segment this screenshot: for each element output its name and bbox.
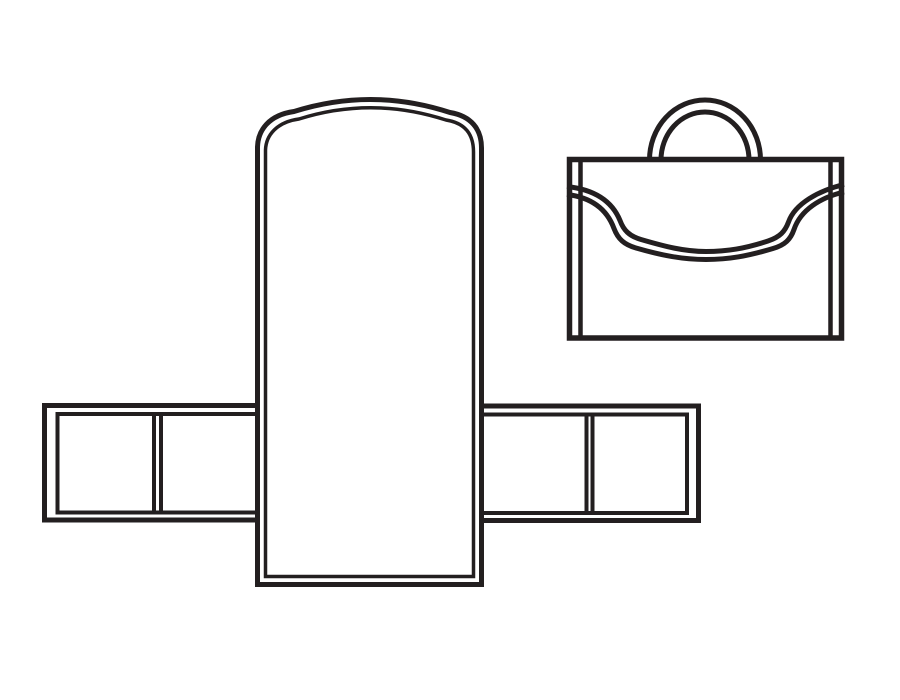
side-strip-left [45,406,268,521]
side-strip-right [470,406,699,521]
die-template-diagram [0,0,900,700]
briefcase-body [570,160,842,339]
strip-right-inner-outline [470,415,687,514]
briefcase-handle-inner [661,112,749,160]
briefcase-handle-outer [650,100,761,160]
main-panel [258,99,482,584]
briefcase-icon [567,100,844,338]
main-panel-outline [258,99,482,584]
diagram-canvas [0,0,900,700]
strip-right-outer-outline [470,406,699,521]
